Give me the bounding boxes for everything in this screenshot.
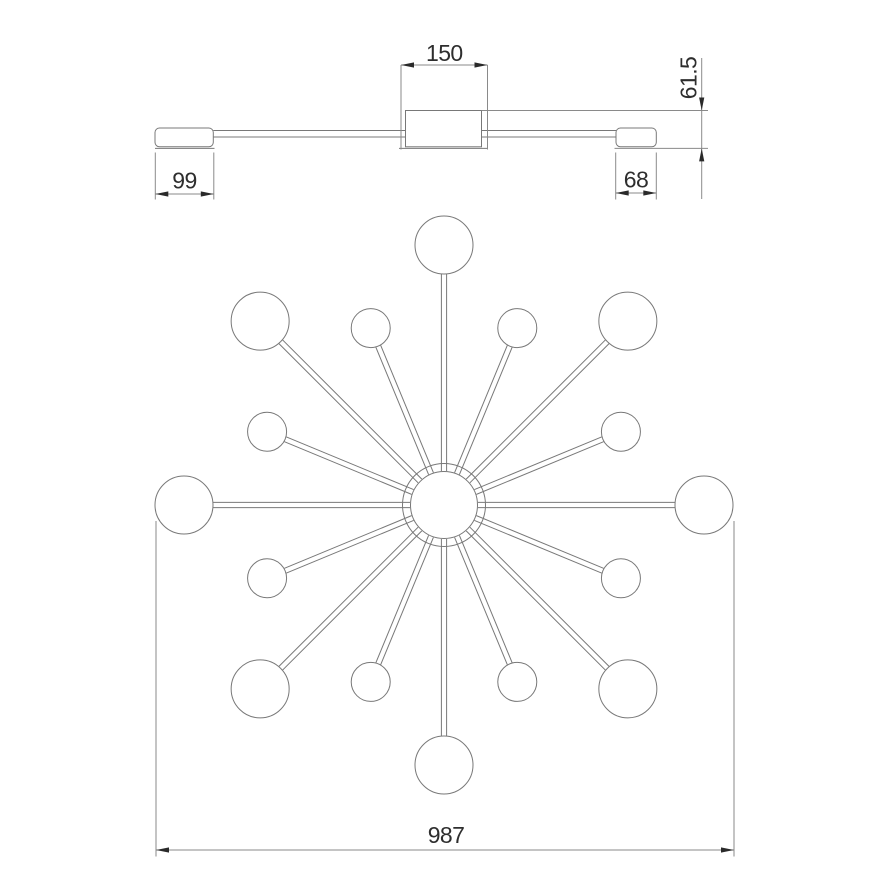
- arm-line: [376, 347, 429, 474]
- dimension-small-shade: 68: [616, 153, 657, 200]
- hub-outer-circle: [403, 464, 486, 547]
- dimension-canopy-width: 150: [401, 40, 488, 150]
- arm-line: [470, 527, 609, 666]
- arm-line: [474, 520, 601, 573]
- arm-line: [283, 531, 422, 670]
- canopy-box: [406, 111, 482, 147]
- side-view: [155, 111, 656, 149]
- arm-line: [459, 347, 512, 474]
- arm-line: [279, 344, 418, 483]
- dim-label-99: 99: [172, 168, 196, 194]
- bulb-small: [601, 559, 640, 598]
- plan-view: [155, 216, 733, 794]
- arrowhead-right: [201, 191, 214, 196]
- arm-line: [459, 535, 512, 662]
- bulb-small: [601, 412, 640, 451]
- arm-line: [283, 340, 422, 479]
- dimension-large-shade: 99: [155, 153, 214, 200]
- bulb-large: [675, 476, 733, 534]
- arm-line: [474, 437, 601, 490]
- arrowhead-right: [475, 62, 488, 67]
- dim-label-61-5: 61.5: [676, 57, 702, 99]
- arm-line: [466, 340, 605, 479]
- right-shade: [616, 128, 656, 147]
- arrowhead-left: [156, 847, 169, 852]
- bulb-small: [248, 559, 287, 598]
- left-shade: [155, 128, 213, 147]
- drawing-canvas: 150 61.5 99 68 987: [0, 0, 887, 887]
- bulb-large: [155, 476, 213, 534]
- dimension-fixture-height: 61.5: [482, 57, 709, 199]
- bulb-large: [415, 736, 473, 794]
- arm-line: [286, 520, 413, 573]
- bulb-large: [599, 660, 657, 718]
- arrowhead-left: [401, 62, 414, 67]
- arrowhead-right: [721, 847, 734, 852]
- dim-label-68: 68: [624, 167, 648, 193]
- arrowhead-up: [699, 148, 704, 161]
- arm-line: [279, 527, 418, 666]
- dim-label-987: 987: [428, 822, 465, 848]
- arrowhead-left: [155, 191, 168, 196]
- technical-drawing: 150 61.5 99 68 987: [0, 0, 887, 887]
- bulb-large: [415, 216, 473, 274]
- arm-line: [286, 437, 413, 490]
- dim-label-150: 150: [426, 40, 463, 66]
- bulb-small: [351, 662, 390, 701]
- arm-line: [376, 535, 429, 662]
- bulb-small: [498, 309, 537, 348]
- bulb-small: [498, 662, 537, 701]
- bulb-large: [599, 292, 657, 350]
- bulb-small: [248, 412, 287, 451]
- bulb-large: [231, 660, 289, 718]
- arm-line: [470, 344, 609, 483]
- bulb-small: [351, 309, 390, 348]
- hub-inner-circle: [411, 472, 478, 539]
- arm-line: [466, 531, 605, 670]
- bulb-large: [231, 292, 289, 350]
